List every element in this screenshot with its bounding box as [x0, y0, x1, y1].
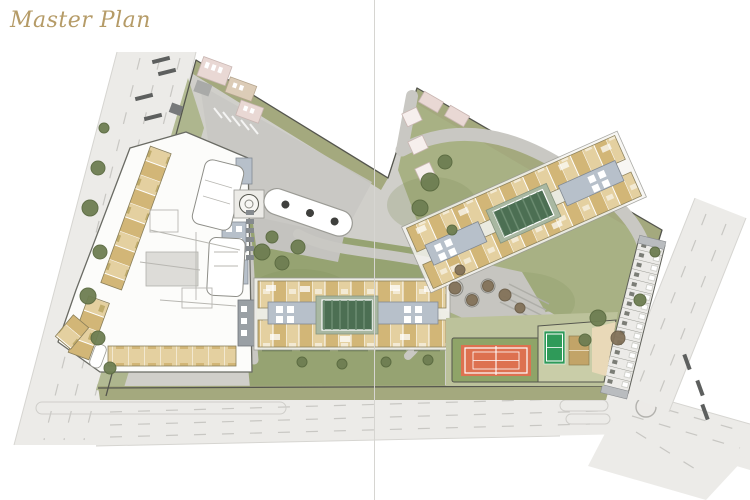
central-pool [316, 296, 378, 334]
column-divider-line [374, 0, 375, 500]
basketball-court [544, 331, 565, 364]
master-plan-rendering [0, 0, 750, 500]
page-title: Master Plan [10, 8, 151, 33]
tennis-court [461, 345, 531, 376]
central-apartment-block [254, 278, 450, 350]
master-plan-page: Master Plan [0, 0, 750, 500]
unit-row-south [108, 346, 236, 366]
